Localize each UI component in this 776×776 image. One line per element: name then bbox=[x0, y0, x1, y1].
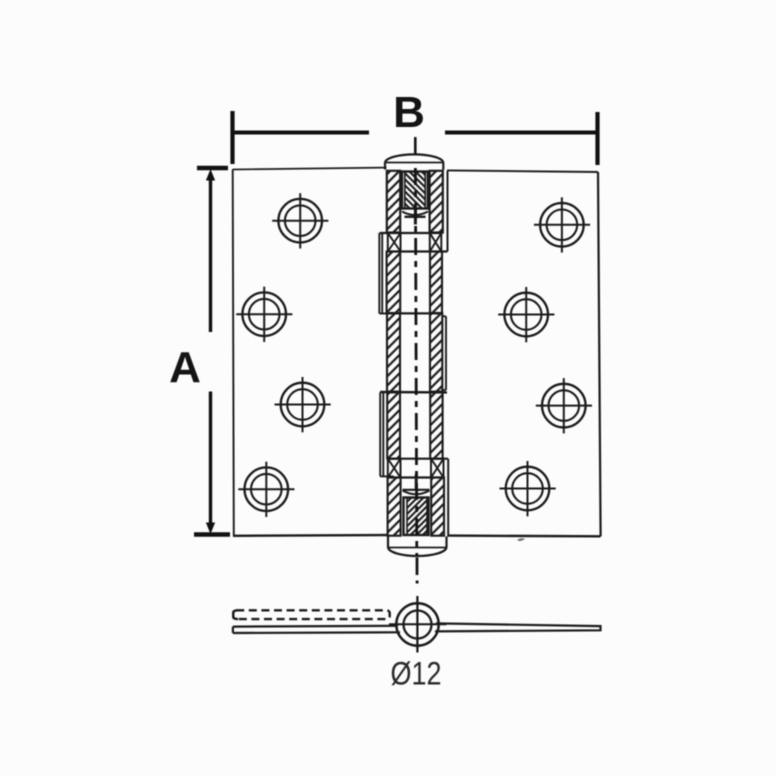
svg-text:B: B bbox=[393, 88, 425, 137]
svg-text:Ø12: Ø12 bbox=[391, 656, 442, 692]
svg-text:A: A bbox=[169, 343, 201, 392]
